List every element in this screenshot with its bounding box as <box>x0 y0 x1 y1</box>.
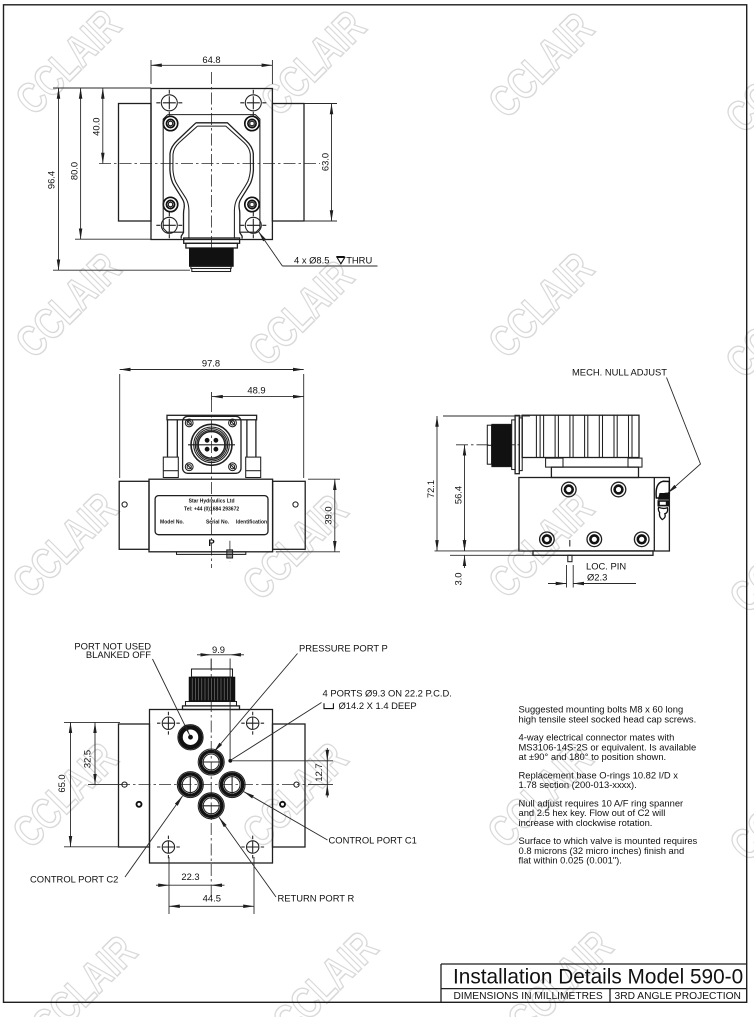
svg-text:Identification: Identification <box>236 520 267 526</box>
svg-text:increase with clockwise rotati: increase with clockwise rotation. <box>519 817 653 828</box>
svg-text:CONTROL PORT C1: CONTROL PORT C1 <box>329 835 417 846</box>
svg-text:9.9: 9.9 <box>212 644 225 655</box>
svg-text:22.3: 22.3 <box>181 871 199 882</box>
svg-text:12.7: 12.7 <box>313 763 324 781</box>
svg-text:4 PORTS Ø9.3 ON 22.2 P.C.D.: 4 PORTS Ø9.3 ON 22.2 P.C.D. <box>323 688 452 699</box>
svg-text:THRU: THRU <box>346 255 372 266</box>
svg-text:39.0: 39.0 <box>323 506 334 524</box>
svg-text:40.0: 40.0 <box>91 118 102 136</box>
svg-text:Star Hydraulics Ltd: Star Hydraulics Ltd <box>189 498 235 504</box>
svg-text:PRESSURE PORT P: PRESSURE PORT P <box>299 643 388 654</box>
svg-text:44.5: 44.5 <box>203 892 221 903</box>
svg-text:Serial No.: Serial No. <box>206 520 230 526</box>
svg-text:BLANKED OFF: BLANKED OFF <box>86 649 151 660</box>
svg-text:64.8: 64.8 <box>202 54 220 65</box>
svg-text:Ø2.3: Ø2.3 <box>587 572 607 583</box>
svg-text:CONTROL PORT C2: CONTROL PORT C2 <box>30 874 118 885</box>
svg-text:RETURN PORT R: RETURN PORT R <box>278 893 355 904</box>
svg-text:P: P <box>208 538 215 549</box>
svg-text:1.78 section (200-013-xxxx).: 1.78 section (200-013-xxxx). <box>519 779 637 790</box>
svg-text:80.0: 80.0 <box>68 162 79 180</box>
svg-text:DIMENSIONS IN MILLIMETRES: DIMENSIONS IN MILLIMETRES <box>454 991 603 1002</box>
svg-text:Installation Details Model 590: Installation Details Model 590-0 <box>453 966 743 989</box>
svg-text:high tensile steel socked head: high tensile steel socked head cap screw… <box>519 713 697 724</box>
svg-text:97.8: 97.8 <box>202 358 220 369</box>
svg-text:flat within 0.025 (0.001").: flat within 0.025 (0.001"). <box>519 855 622 866</box>
svg-text:4 x Ø8.5: 4 x Ø8.5 <box>294 255 329 266</box>
svg-text:72.1: 72.1 <box>425 480 436 498</box>
svg-text:3.0: 3.0 <box>453 572 464 585</box>
svg-text:Tel: +44 (0)1684 293672: Tel: +44 (0)1684 293672 <box>184 507 239 513</box>
svg-text:Model No.: Model No. <box>160 520 184 526</box>
svg-text:96.4: 96.4 <box>45 171 56 189</box>
svg-text:48.9: 48.9 <box>247 385 265 396</box>
svg-text:LOC. PIN: LOC. PIN <box>586 561 626 572</box>
svg-text:3RD ANGLE PROJECTION: 3RD ANGLE PROJECTION <box>615 991 741 1002</box>
svg-text:63.0: 63.0 <box>319 153 330 171</box>
svg-text:56.4: 56.4 <box>452 486 463 504</box>
svg-text:32.5: 32.5 <box>82 750 93 768</box>
svg-text:65.0: 65.0 <box>56 774 67 792</box>
svg-text:MECH. NULL ADJUST: MECH. NULL ADJUST <box>572 367 667 378</box>
svg-text:at ±90° and 180° to position s: at ±90° and 180° to position shown. <box>519 751 667 762</box>
svg-text:Ø14.2 X 1.4 DEEP: Ø14.2 X 1.4 DEEP <box>339 700 417 711</box>
